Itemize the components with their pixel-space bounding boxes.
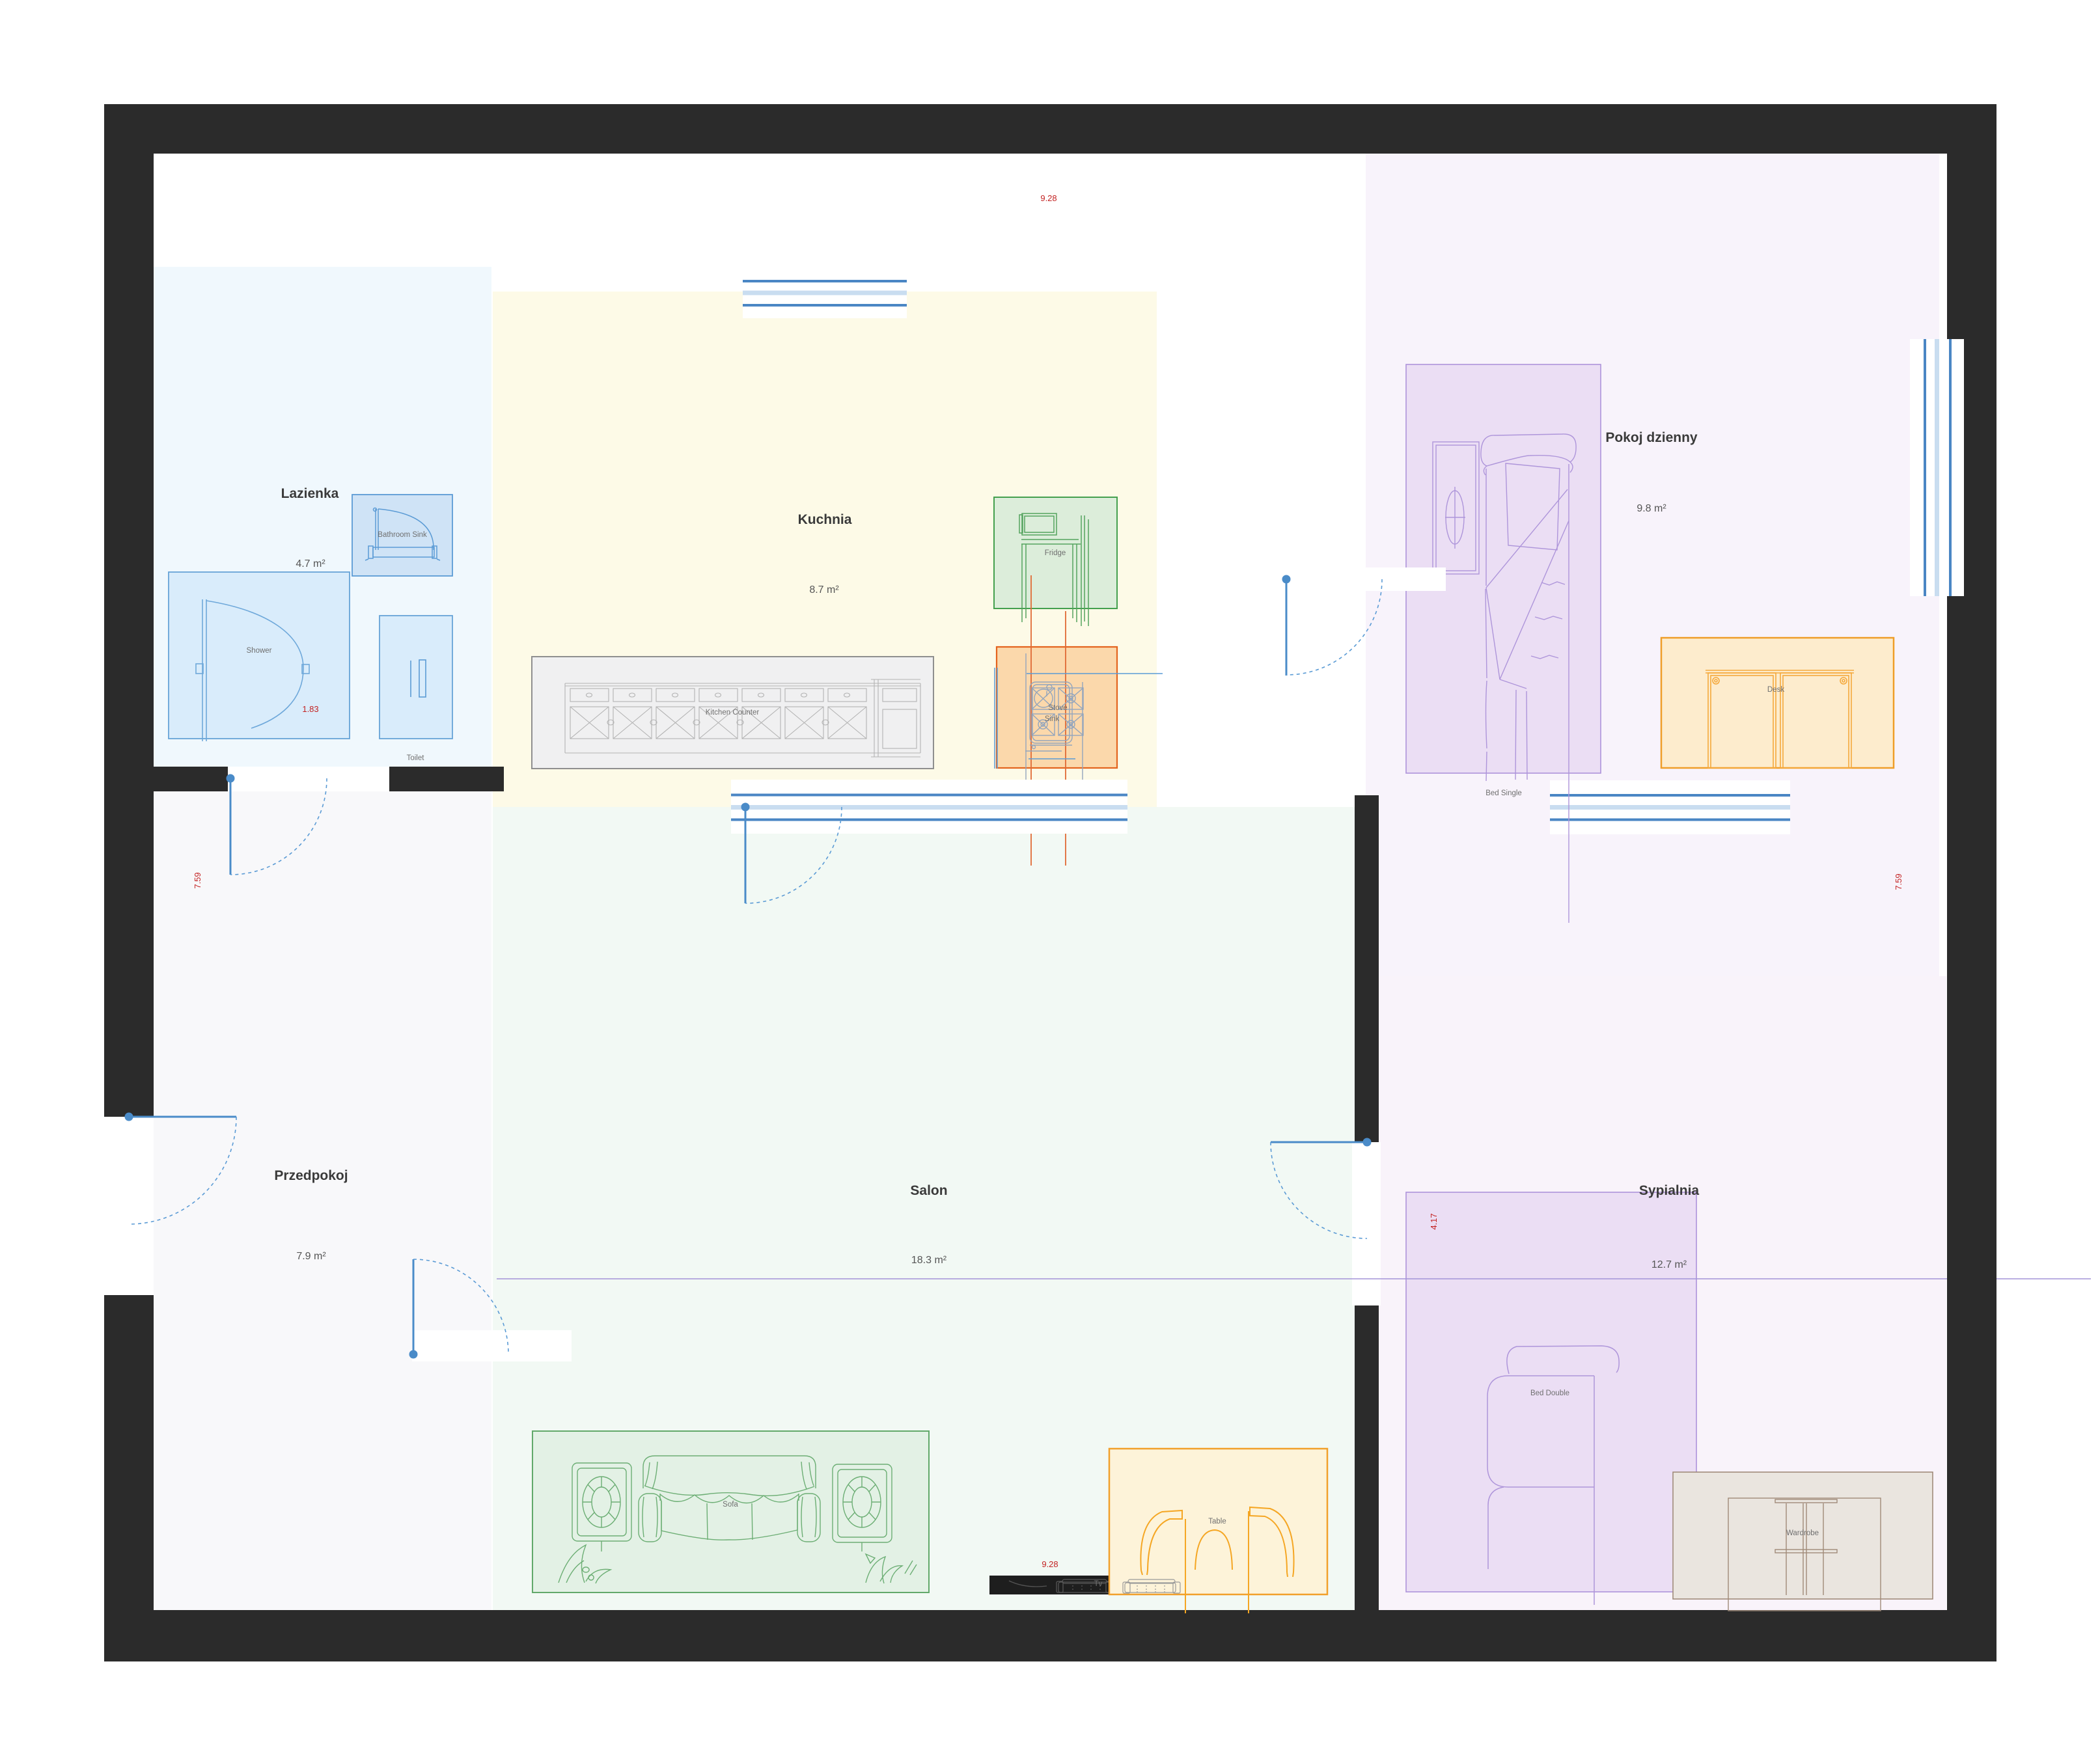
svg-text:Table: Table (1208, 1518, 1226, 1525)
svg-text:Shower: Shower (247, 647, 272, 655)
svg-text:9.28: 9.28 (1042, 1559, 1058, 1569)
svg-text:Przedpokoj: Przedpokoj (274, 1168, 348, 1183)
svg-text:Lazienka: Lazienka (281, 486, 339, 501)
svg-text:Desk: Desk (1767, 686, 1784, 694)
svg-text:Sofa: Sofa (723, 1501, 738, 1509)
svg-text:9.8 m²: 9.8 m² (1637, 503, 1666, 514)
svg-text:Toilet: Toilet (407, 754, 425, 762)
svg-text:Bed Double: Bed Double (1530, 1389, 1569, 1397)
svg-text:7.59: 7.59 (193, 872, 202, 888)
svg-text:Pokoj dzienny: Pokoj dzienny (1605, 430, 1698, 445)
svg-text:Kitchen Counter: Kitchen Counter (706, 709, 760, 717)
svg-text:Bathroom Sink: Bathroom Sink (378, 531, 427, 539)
svg-text:Sypialnia: Sypialnia (1639, 1183, 1700, 1198)
svg-text:18.3 m²: 18.3 m² (911, 1255, 947, 1266)
svg-text:9.28: 9.28 (1040, 193, 1057, 203)
svg-text:4.7 m²: 4.7 m² (296, 558, 325, 569)
svg-text:Salon: Salon (910, 1183, 947, 1198)
svg-text:12.7 m²: 12.7 m² (1651, 1259, 1687, 1270)
svg-text:7.9 m²: 7.9 m² (296, 1251, 326, 1262)
svg-text:4.17: 4.17 (1429, 1213, 1439, 1229)
svg-text:Bed Single: Bed Single (1485, 789, 1522, 797)
svg-text:8.7 m²: 8.7 m² (809, 584, 839, 595)
svg-text:Kuchnia: Kuchnia (798, 512, 852, 527)
svg-text:7.59: 7.59 (1894, 873, 1903, 890)
svg-text:Stove: Stove (1048, 704, 1067, 712)
svg-text:Sink: Sink (1045, 715, 1060, 723)
svg-text:1.83: 1.83 (302, 704, 318, 714)
svg-text:Fridge: Fridge (1045, 549, 1066, 557)
svg-text:Wardrobe: Wardrobe (1786, 1529, 1819, 1537)
svg-text:Tv: Tv (1094, 1580, 1103, 1588)
